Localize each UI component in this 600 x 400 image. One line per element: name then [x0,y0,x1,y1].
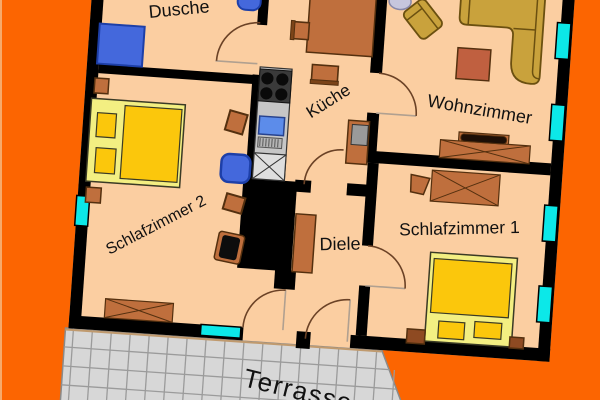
svg-text:Diele: Diele [319,234,360,255]
svg-text:Schlafzimmer 1: Schlafzimmer 1 [399,217,520,240]
